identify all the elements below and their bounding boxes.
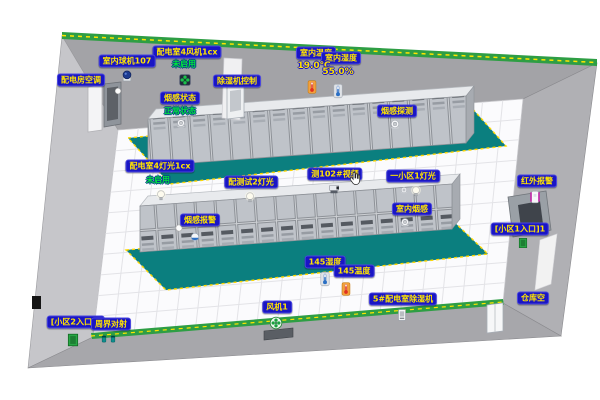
label-smoke-status[interactable]: 烟感状态 [160, 92, 200, 105]
label-room4-light[interactable]: 配电室4灯光1cx [125, 160, 194, 173]
door-icon[interactable] [68, 334, 77, 346]
infrared-sensor-icon[interactable] [530, 191, 540, 203]
label-warehouse-ac[interactable]: 仓库空 [517, 292, 549, 305]
smoke-detector-dome-icon[interactable] [191, 233, 199, 241]
machine-room-3d-view: 配电室4风机1cx 室内球机107 配电房空调 除湿机控制 烟感状态 室内温度 … [0, 0, 600, 400]
label-power-room-ac[interactable]: 配电房空调 [57, 74, 105, 87]
beam-sensor-icon[interactable] [111, 336, 115, 342]
ptz-camera-icon[interactable] [329, 185, 338, 193]
smoke-detector-icon[interactable] [391, 120, 399, 129]
label-smoke-detection[interactable]: 烟感探测 [377, 105, 417, 118]
label-infrared-alarm[interactable]: 红外报警 [517, 175, 557, 188]
beam-sensor-icon[interactable] [102, 336, 106, 342]
thermometer-icon[interactable] [342, 283, 350, 296]
cursor-hand-icon [348, 171, 363, 186]
label-entrance-1[interactable]: [小区1入口]1 [491, 223, 549, 236]
dehumidifier-unit-panel [230, 90, 241, 113]
humidity-icon[interactable] [334, 84, 342, 98]
smoke-detector-icon[interactable] [401, 219, 409, 227]
dehumidifier-icon[interactable] [399, 310, 406, 321]
label-indoor-smoke[interactable]: 室内烟感 [392, 203, 432, 216]
fan-icon[interactable] [270, 317, 282, 329]
label-temperature-145[interactable]: 145温度 [334, 265, 375, 278]
value-indoor-humidity: 55.0% [322, 67, 353, 77]
label-test2-light[interactable]: 配测试2灯光 [224, 176, 278, 189]
status-light-disabled: 未启用 [146, 176, 170, 185]
label-room4-fan[interactable]: 配电室4风机1cx [152, 46, 221, 59]
label-smoke-alarm[interactable]: 烟感报警 [180, 214, 220, 227]
thermometer-icon[interactable] [308, 81, 316, 94]
smoke-detector-icon[interactable] [177, 120, 185, 128]
dome-camera-icon[interactable] [123, 71, 131, 81]
fan-icon[interactable] [180, 75, 191, 86]
smoke-detector-icon[interactable] [401, 187, 407, 193]
label-room5-dehumidifier[interactable]: 5#配电室除湿机 [369, 293, 437, 306]
label-area1-light[interactable]: 一小区1灯光 [386, 170, 440, 183]
humidity-icon[interactable] [321, 272, 329, 286]
ball-camera-icon[interactable] [115, 88, 121, 94]
label-dehumidifier-control[interactable]: 除湿机控制 [213, 75, 261, 88]
ac-cabinet [88, 85, 102, 132]
wall-mark [32, 296, 41, 309]
status-smoke-normal: 正常状态 [164, 107, 196, 116]
label-indoor-dome-camera[interactable]: 室内球机107 [99, 55, 156, 68]
label-fan-1[interactable]: 风机1 [262, 301, 292, 314]
scene-svg [0, 0, 600, 400]
status-fan-disabled: 未启用 [172, 60, 196, 69]
door-icon[interactable] [519, 238, 527, 247]
label-perimeter-beam[interactable]: 周界对射 [91, 318, 131, 331]
